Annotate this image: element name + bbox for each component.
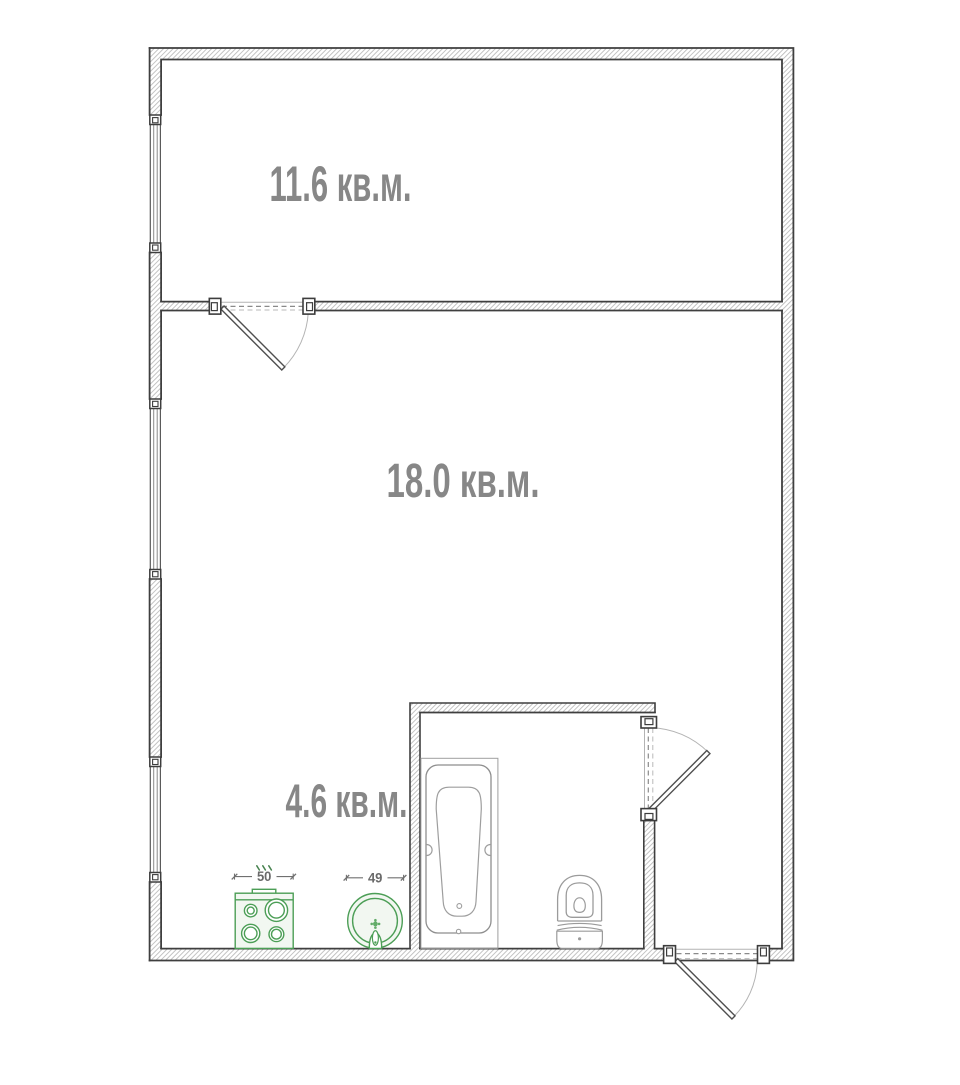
svg-text:49: 49: [368, 870, 383, 885]
svg-text:11.6 кв.м.: 11.6 кв.м.: [270, 156, 412, 212]
svg-text:4.6 кв.м.: 4.6 кв.м.: [286, 774, 408, 827]
svg-text:18.0 кв.м.: 18.0 кв.м.: [387, 454, 540, 508]
svg-text:50: 50: [257, 869, 272, 884]
